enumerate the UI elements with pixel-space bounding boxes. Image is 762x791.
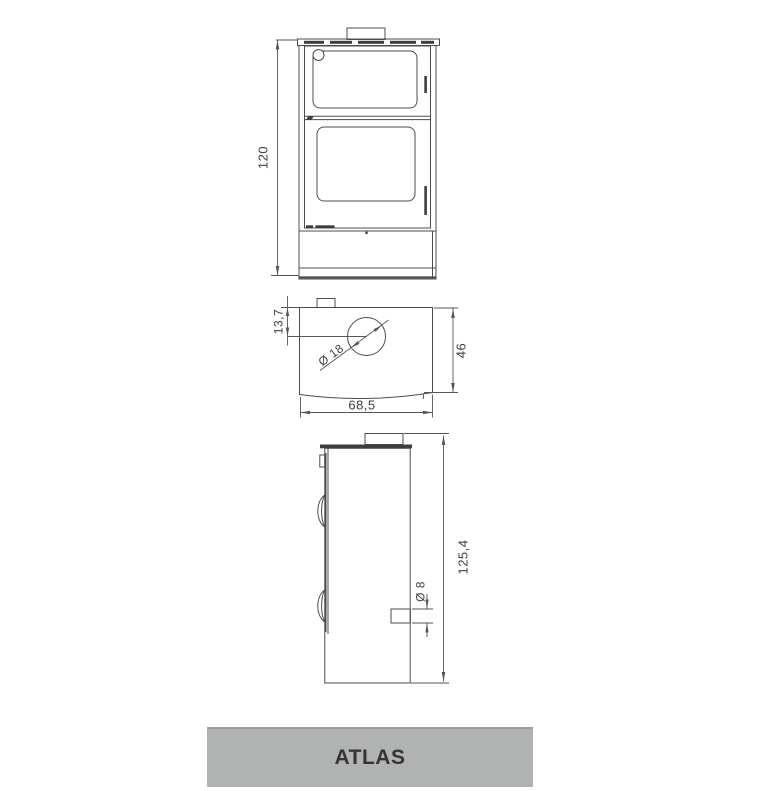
top-latch-side <box>320 455 325 467</box>
flue-offset-dim-label: 13,7 <box>272 309 286 334</box>
side-view: Ø 8 125,4 <box>318 434 471 684</box>
upper-hinge <box>424 76 427 93</box>
depth-dim-label: 46 <box>454 343 469 358</box>
drawing-sheet: 120 Ø 18 13,7 <box>0 0 762 710</box>
side-height-dimension: 125,4 <box>404 434 471 684</box>
air-inlet-dimension: Ø 8 <box>412 581 433 637</box>
air-inlet-box <box>391 609 410 623</box>
flue-collar-side <box>365 434 403 445</box>
door-knob <box>313 50 324 61</box>
model-name-label: ATLAS <box>335 746 406 770</box>
top-view-outline <box>300 308 433 399</box>
lower-handle-side <box>318 590 325 622</box>
stove-body-side <box>325 448 410 683</box>
width-dim-label: 68,5 <box>348 398 375 413</box>
base-pin <box>365 232 368 235</box>
top-plate-vent-slots <box>304 41 434 44</box>
lower-hinge <box>424 186 427 215</box>
width-dimension: 68,5 <box>301 395 433 418</box>
top-view: Ø 18 13,7 46 <box>272 296 469 418</box>
flue-offset-dimension: 13,7 <box>272 296 299 346</box>
front-height-dimension: 120 <box>256 40 300 276</box>
top-plate-side <box>320 445 412 449</box>
top-view-handle-tab <box>317 299 335 308</box>
door-bottom-mark <box>306 225 313 228</box>
model-nameplate: ATLAS <box>207 727 533 787</box>
flue-collar-front <box>347 28 385 40</box>
upper-door-window <box>313 51 417 108</box>
upper-handle-side <box>318 495 325 527</box>
side-height-dim-label: 125,4 <box>456 539 471 574</box>
lower-door-window <box>317 127 415 201</box>
front-height-dim-label: 120 <box>256 146 271 169</box>
air-inlet-dim-label: Ø 8 <box>414 581 428 602</box>
stove-technical-drawing: 120 Ø 18 13,7 <box>0 0 762 791</box>
front-view: 120 <box>256 28 440 279</box>
